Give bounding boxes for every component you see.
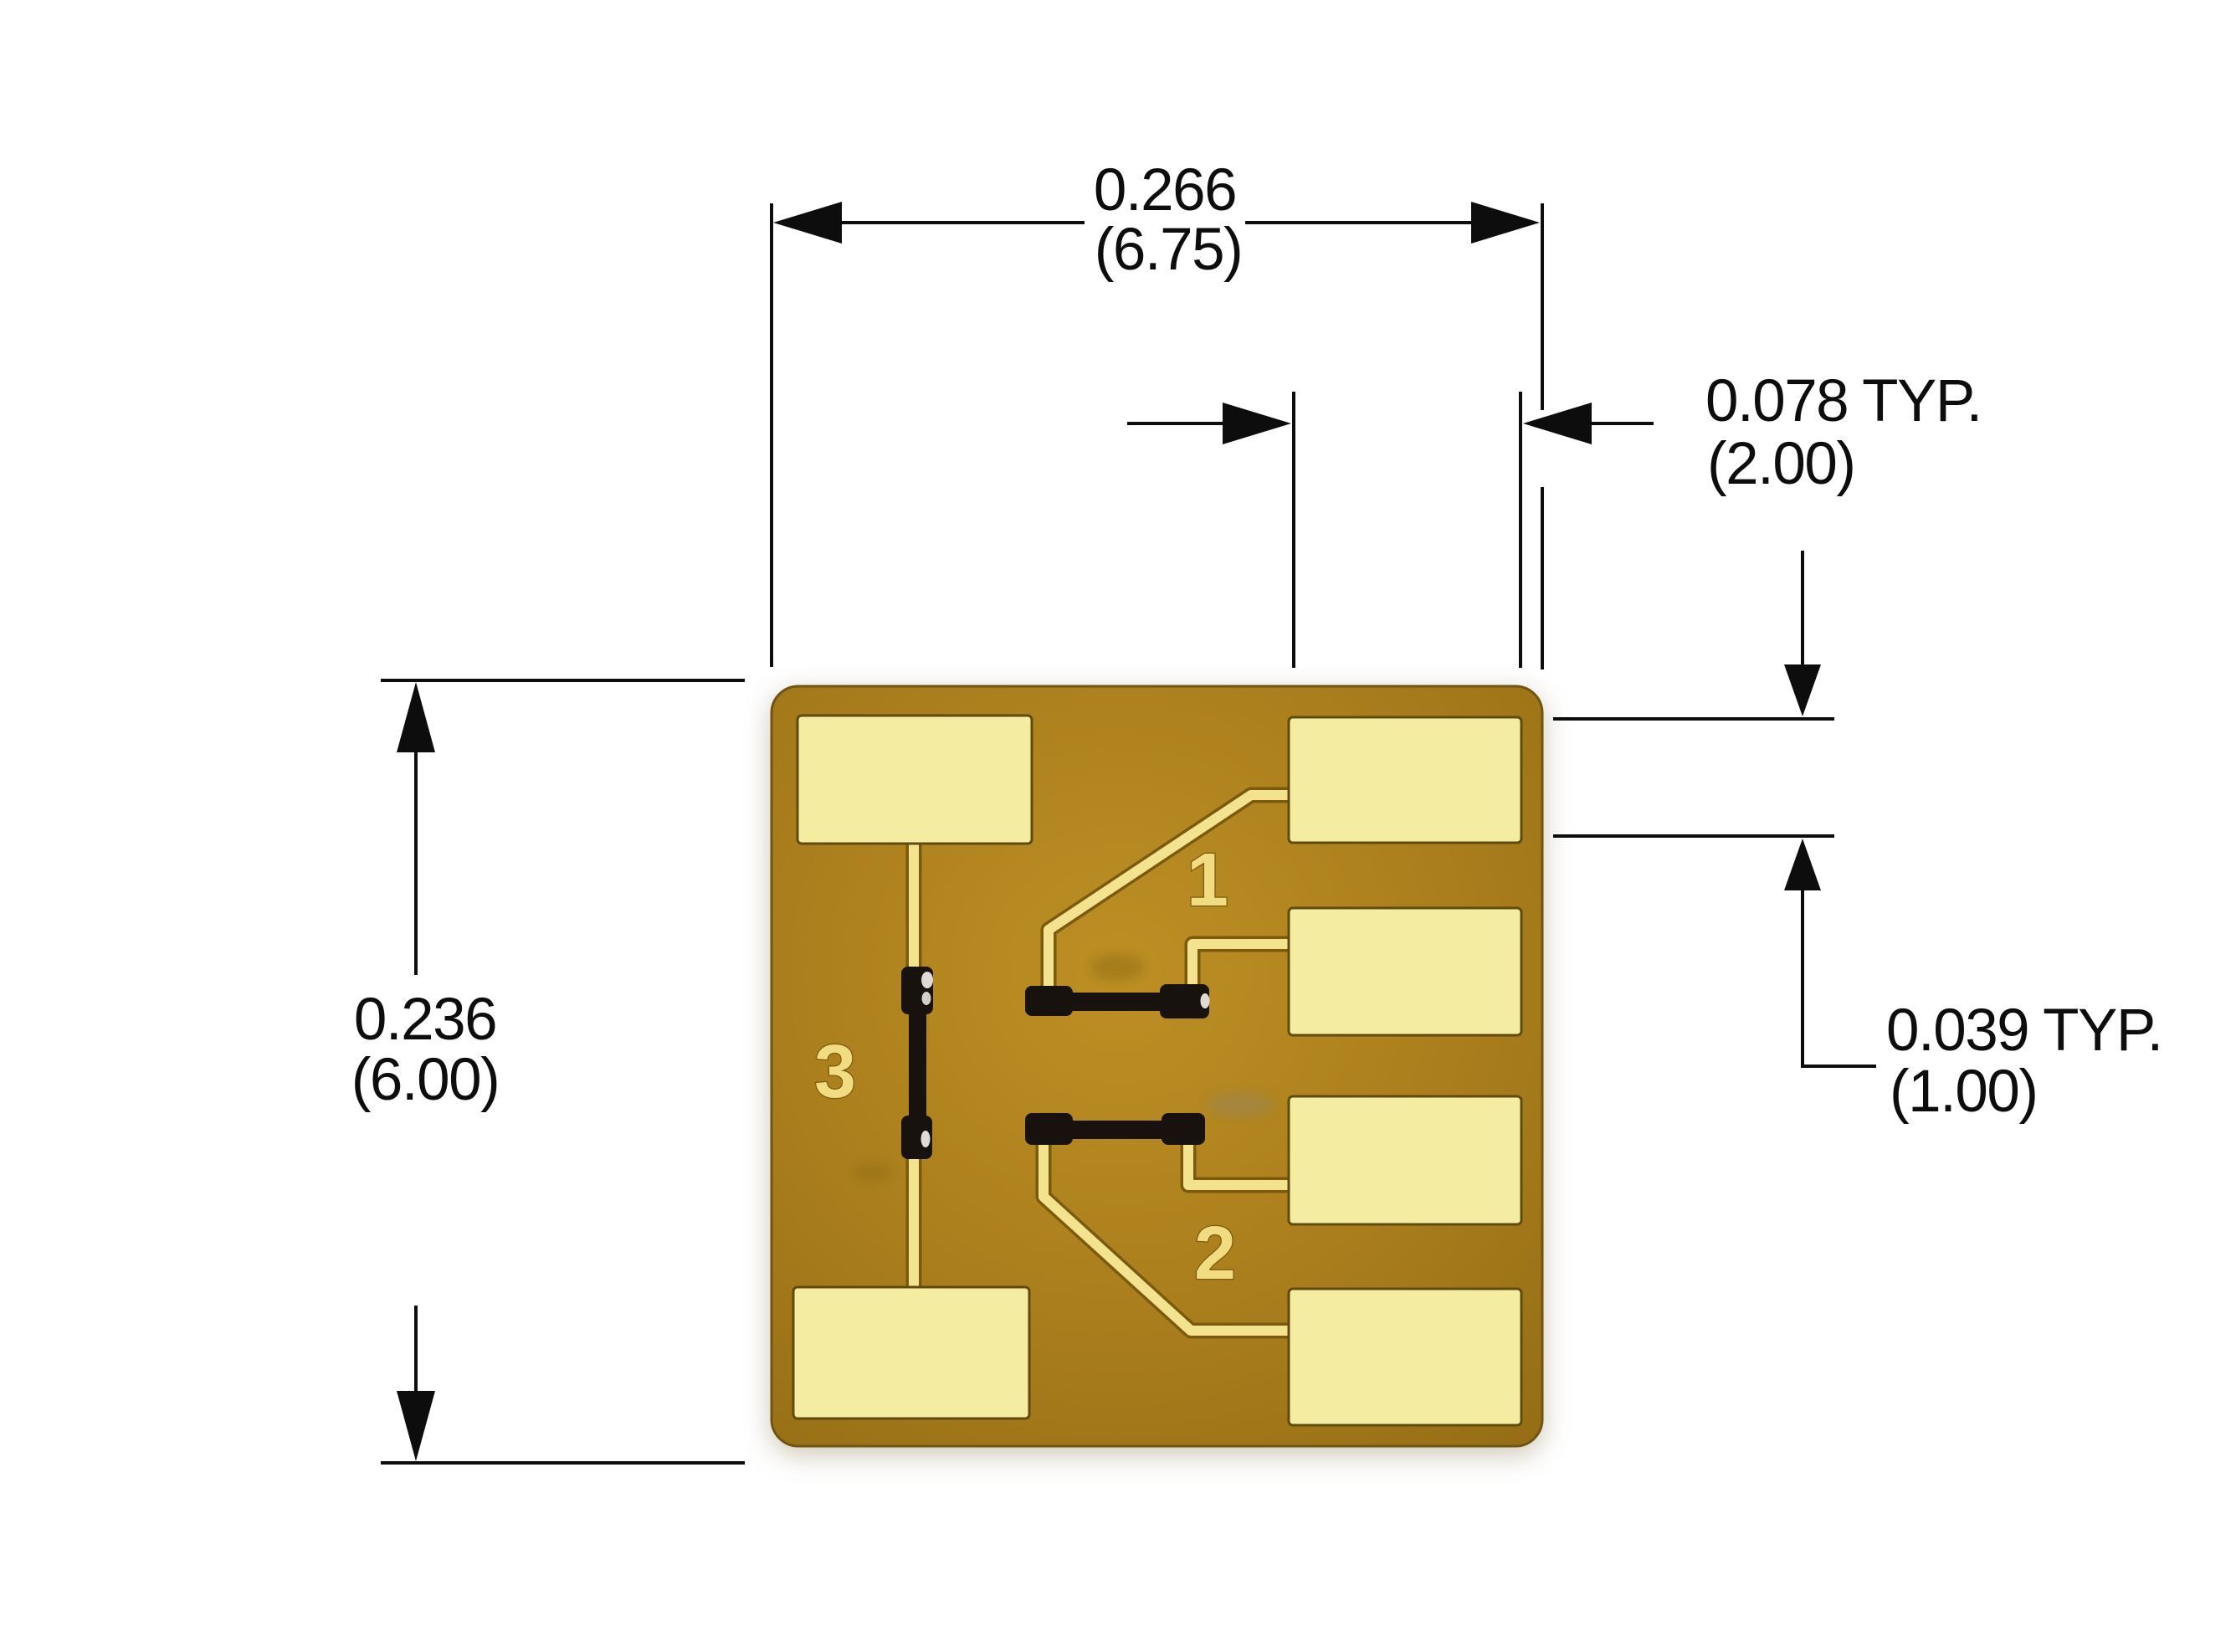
dim-width-mm: (6.75) (1095, 219, 1242, 281)
extension-line (1553, 717, 1834, 721)
leader-line (1801, 889, 1804, 1068)
pin-label-1: 1 (1187, 839, 1228, 922)
dim-pad-height-inches: 0.039 TYP. (1886, 1000, 2162, 1062)
pad-bottom-left (793, 1287, 1029, 1419)
dimension-line (1245, 221, 1473, 224)
dimension-line (1590, 422, 1654, 425)
extension-line (381, 1461, 745, 1465)
extension-line (1541, 203, 1544, 410)
dimension-line (1127, 422, 1224, 425)
leader-line (1801, 1065, 1876, 1068)
extension-line (1553, 834, 1834, 838)
arrowhead-left-icon (773, 202, 842, 244)
extension-line (1519, 392, 1522, 668)
extension-line (381, 679, 745, 682)
arrowhead-down-icon (397, 1391, 435, 1461)
dimension-line (1801, 551, 1804, 666)
dim-width-inches: 0.266 (1094, 160, 1236, 222)
arrowhead-left-icon (1523, 403, 1592, 444)
arrowhead-up-icon (397, 682, 435, 752)
extension-line (1292, 392, 1295, 668)
dim-pad-height-mm: (1.00) (1890, 1061, 2037, 1123)
dim-pad-width-mm: (2.00) (1707, 434, 1854, 495)
dim-height-mm: (6.00) (351, 1049, 499, 1111)
drawing-canvas: 1 2 3 0.266 (6.75) 0.078 TYP. (2.00) 0 (0, 0, 2236, 1652)
dim-pad-width-inches: 0.078 TYP. (1705, 371, 1982, 433)
pad-right-row1 (1289, 717, 1521, 843)
pin-label-2: 2 (1194, 1212, 1236, 1295)
pad-right-row3 (1289, 1096, 1521, 1224)
arrowhead-down-icon (1784, 664, 1821, 716)
arrowhead-up-icon (1784, 839, 1821, 890)
solder-highlight (1201, 993, 1210, 1008)
substrate-photo: 1 2 3 (770, 685, 1544, 1448)
dimension-line (414, 752, 418, 975)
pad-right-row2 (1289, 908, 1521, 1035)
dimension-line (414, 1306, 418, 1391)
dimension-line (840, 221, 1085, 224)
pad-top-left (797, 716, 1032, 844)
pad-right-row4 (1289, 1289, 1521, 1425)
solder-highlight (921, 1131, 931, 1147)
solder-highlight (922, 992, 931, 1005)
dim-height-inches: 0.236 (354, 989, 496, 1051)
solder-highlight (921, 972, 933, 988)
arrowhead-right-icon (1223, 403, 1291, 444)
extension-line (770, 203, 773, 667)
extension-line (1541, 487, 1544, 670)
arrowhead-right-icon (1471, 202, 1540, 244)
pin-label-3: 3 (814, 1030, 856, 1114)
